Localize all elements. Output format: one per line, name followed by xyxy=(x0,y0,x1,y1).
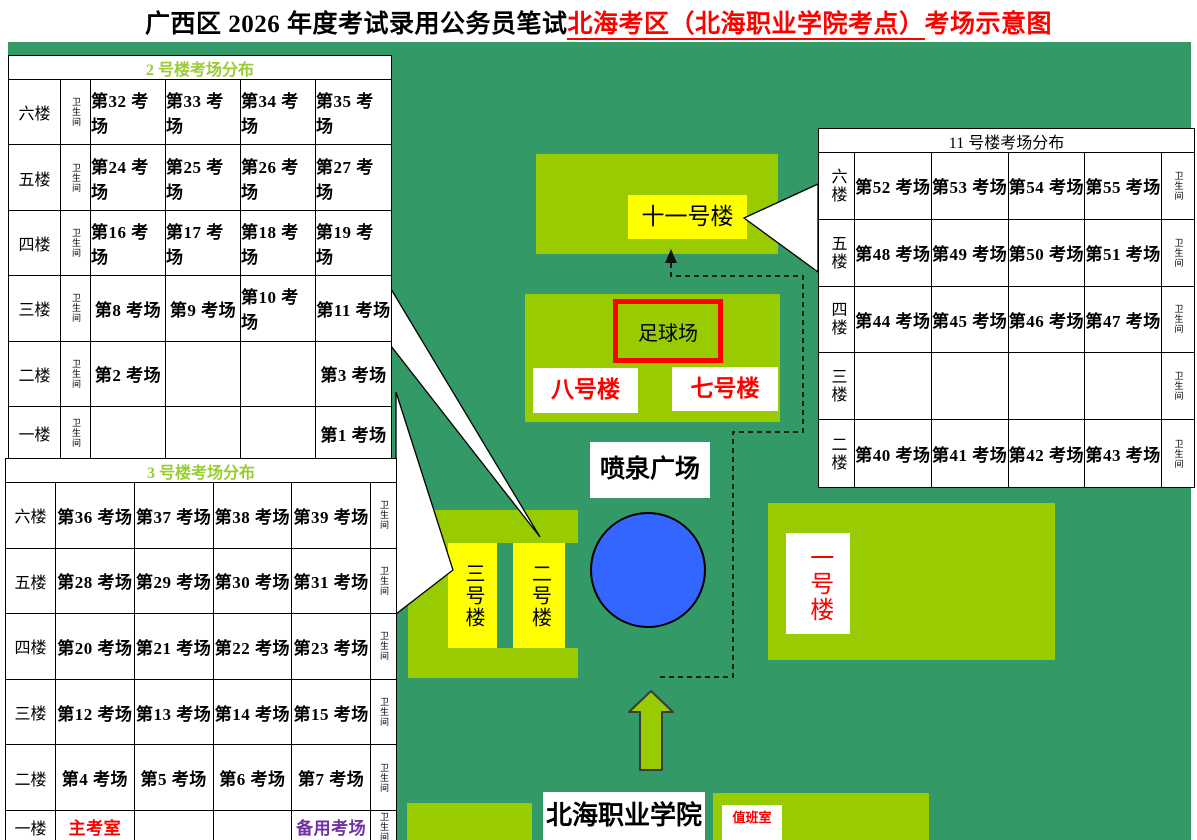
room-cell: 第15 考场 xyxy=(292,680,371,746)
building1-map-label: 一号楼 xyxy=(786,533,850,634)
building2-table-title: 2 号楼考场分布 xyxy=(9,56,391,80)
toilet-cell: 卫生间 xyxy=(61,145,91,210)
exam-map-canvas: 广西区 2026 年度考试录用公务员笔试北海考区（北海职业学院考点）考场示意图 … xyxy=(0,0,1197,840)
football-field-label: 足球场 xyxy=(613,299,723,363)
room-cell: 第28 考场 xyxy=(56,549,135,615)
room-cell: 第23 考场 xyxy=(292,614,371,680)
toilet-cell: 卫生间 xyxy=(1162,353,1194,420)
toilet-cell: 卫生间 xyxy=(61,211,91,276)
bottom-left-block xyxy=(407,803,532,840)
room-cell: 第53 考场 xyxy=(932,153,1009,220)
college-name-label: 北海职业学院 xyxy=(543,792,705,840)
room-cell: 第41 考场 xyxy=(932,420,1009,487)
page-title: 广西区 2026 年度考试录用公务员笔试北海考区（北海职业学院考点）考场示意图 xyxy=(0,4,1197,40)
toilet-cell: 卫生间 xyxy=(371,614,396,680)
room-cell xyxy=(241,342,316,407)
room-cell: 第1 考场 xyxy=(316,407,391,460)
room-cell: 备用考场 xyxy=(292,811,371,840)
room-cell: 第42 考场 xyxy=(1009,420,1086,487)
room-cell: 第26 考场 xyxy=(241,145,316,210)
room-cell: 第6 考场 xyxy=(214,745,293,811)
building2-room-table: 2 号楼考场分布六楼卫生间第32 考场第33 考场第34 考场第35 考场五楼卫… xyxy=(8,55,392,461)
toilet-cell: 卫生间 xyxy=(371,483,396,549)
room-cell xyxy=(932,353,1009,420)
room-cell: 第51 考场 xyxy=(1085,220,1162,287)
room-cell: 第16 考场 xyxy=(91,211,166,276)
room-cell: 第22 考场 xyxy=(214,614,293,680)
toilet-cell: 卫生间 xyxy=(371,811,396,840)
room-cell xyxy=(241,407,316,460)
building23-right-notch xyxy=(565,543,578,648)
room-cell: 第33 考场 xyxy=(166,80,241,145)
toilet-cell: 卫生间 xyxy=(371,549,396,615)
room-cell: 第3 考场 xyxy=(316,342,391,407)
room-cell: 第18 考场 xyxy=(241,211,316,276)
fountain-plaza-label: 喷泉广场 xyxy=(590,442,710,498)
room-cell: 第37 考场 xyxy=(135,483,214,549)
building3-room-table: 3 号楼考场分布六楼第36 考场第37 考场第38 考场第39 考场卫生间五楼第… xyxy=(5,458,397,840)
room-cell: 主考室 xyxy=(56,811,135,840)
floor-cell: 四楼 xyxy=(6,614,56,680)
room-cell xyxy=(135,811,214,840)
floor-cell: 五楼 xyxy=(6,549,56,615)
room-cell: 第52 考场 xyxy=(855,153,932,220)
floor-cell: 四楼 xyxy=(9,211,61,276)
building7-map-label: 七号楼 xyxy=(672,367,778,411)
room-cell: 第9 考场 xyxy=(166,276,241,341)
duty-room-label: 值班室 xyxy=(722,805,782,840)
room-cell: 第7 考场 xyxy=(292,745,371,811)
room-cell: 第12 考场 xyxy=(56,680,135,746)
room-cell: 第14 考场 xyxy=(214,680,293,746)
room-cell: 第29 考场 xyxy=(135,549,214,615)
room-cell: 第32 考场 xyxy=(91,80,166,145)
building3-table-title: 3 号楼考场分布 xyxy=(6,459,396,483)
floor-cell: 三楼 xyxy=(9,276,61,341)
room-cell xyxy=(1009,353,1086,420)
room-cell: 第8 考场 xyxy=(91,276,166,341)
room-cell: 第27 考场 xyxy=(316,145,391,210)
building2-tower-label: 二号楼 xyxy=(513,543,565,648)
room-cell: 第39 考场 xyxy=(292,483,371,549)
toilet-cell: 卫生间 xyxy=(1162,420,1194,487)
room-cell: 第43 考场 xyxy=(1085,420,1162,487)
floor-cell: 五楼 xyxy=(9,145,61,210)
room-cell: 第40 考场 xyxy=(855,420,932,487)
room-cell xyxy=(166,342,241,407)
room-cell: 第31 考场 xyxy=(292,549,371,615)
room-cell: 第11 考场 xyxy=(316,276,391,341)
room-cell: 第36 考场 xyxy=(56,483,135,549)
room-cell: 第48 考场 xyxy=(855,220,932,287)
room-cell: 第19 考场 xyxy=(316,211,391,276)
room-cell: 第47 考场 xyxy=(1085,287,1162,354)
floor-cell: 二楼 xyxy=(9,342,61,407)
building11-map-label: 十一号楼 xyxy=(628,195,747,239)
floor-cell: 六楼 xyxy=(6,483,56,549)
room-cell: 第55 考场 xyxy=(1085,153,1162,220)
room-cell: 第17 考场 xyxy=(166,211,241,276)
room-cell: 第50 考场 xyxy=(1009,220,1086,287)
room-cell: 第34 考场 xyxy=(241,80,316,145)
room-cell: 第21 考场 xyxy=(135,614,214,680)
building3-tower-label: 三号楼 xyxy=(448,543,497,648)
room-cell xyxy=(214,811,293,840)
floor-cell: 六楼 xyxy=(9,80,61,145)
room-cell: 第54 考场 xyxy=(1009,153,1086,220)
room-cell: 第10 考场 xyxy=(241,276,316,341)
floor-cell: 一楼 xyxy=(9,407,61,460)
toilet-cell: 卫生间 xyxy=(61,342,91,407)
room-cell: 第38 考场 xyxy=(214,483,293,549)
floor-cell: 六楼 xyxy=(819,153,855,220)
title-location: 北海考区（北海职业学院考点） xyxy=(567,11,924,40)
room-cell: 第49 考场 xyxy=(932,220,1009,287)
room-cell: 第35 考场 xyxy=(316,80,391,145)
room-cell: 第20 考场 xyxy=(56,614,135,680)
toilet-cell: 卫生间 xyxy=(1162,287,1194,354)
floor-cell: 二楼 xyxy=(819,420,855,487)
room-cell xyxy=(166,407,241,460)
room-cell: 第2 考场 xyxy=(91,342,166,407)
toilet-cell: 卫生间 xyxy=(371,680,396,746)
floor-cell: 二楼 xyxy=(6,745,56,811)
room-cell xyxy=(855,353,932,420)
floor-cell: 五楼 xyxy=(819,220,855,287)
floor-cell: 三楼 xyxy=(819,353,855,420)
room-cell: 第5 考场 xyxy=(135,745,214,811)
building11-room-table: 11 号楼考场分布六楼第52 考场第53 考场第54 考场第55 考场卫生间五楼… xyxy=(818,128,1195,488)
toilet-cell: 卫生间 xyxy=(61,276,91,341)
building8-map-label: 八号楼 xyxy=(533,368,638,413)
room-cell: 第45 考场 xyxy=(932,287,1009,354)
room-cell xyxy=(1085,353,1162,420)
toilet-cell: 卫生间 xyxy=(61,80,91,145)
floor-cell: 三楼 xyxy=(6,680,56,746)
room-cell xyxy=(91,407,166,460)
title-prefix: 广西区 2026 年度考试录用公务员笔试 xyxy=(145,11,568,38)
room-cell: 第4 考场 xyxy=(56,745,135,811)
room-cell: 第44 考场 xyxy=(855,287,932,354)
room-cell: 第24 考场 xyxy=(91,145,166,210)
building23-gap xyxy=(497,543,513,648)
floor-cell: 一楼 xyxy=(6,811,56,840)
toilet-cell: 卫生间 xyxy=(61,407,91,460)
room-cell: 第46 考场 xyxy=(1009,287,1086,354)
toilet-cell: 卫生间 xyxy=(371,745,396,811)
room-cell: 第25 考场 xyxy=(166,145,241,210)
toilet-cell: 卫生间 xyxy=(1162,153,1194,220)
room-cell: 第13 考场 xyxy=(135,680,214,746)
floor-cell: 四楼 xyxy=(819,287,855,354)
title-suffix: 考场示意图 xyxy=(925,11,1053,38)
building11-table-title: 11 号楼考场分布 xyxy=(819,129,1194,153)
room-cell: 第30 考场 xyxy=(214,549,293,615)
toilet-cell: 卫生间 xyxy=(1162,220,1194,287)
